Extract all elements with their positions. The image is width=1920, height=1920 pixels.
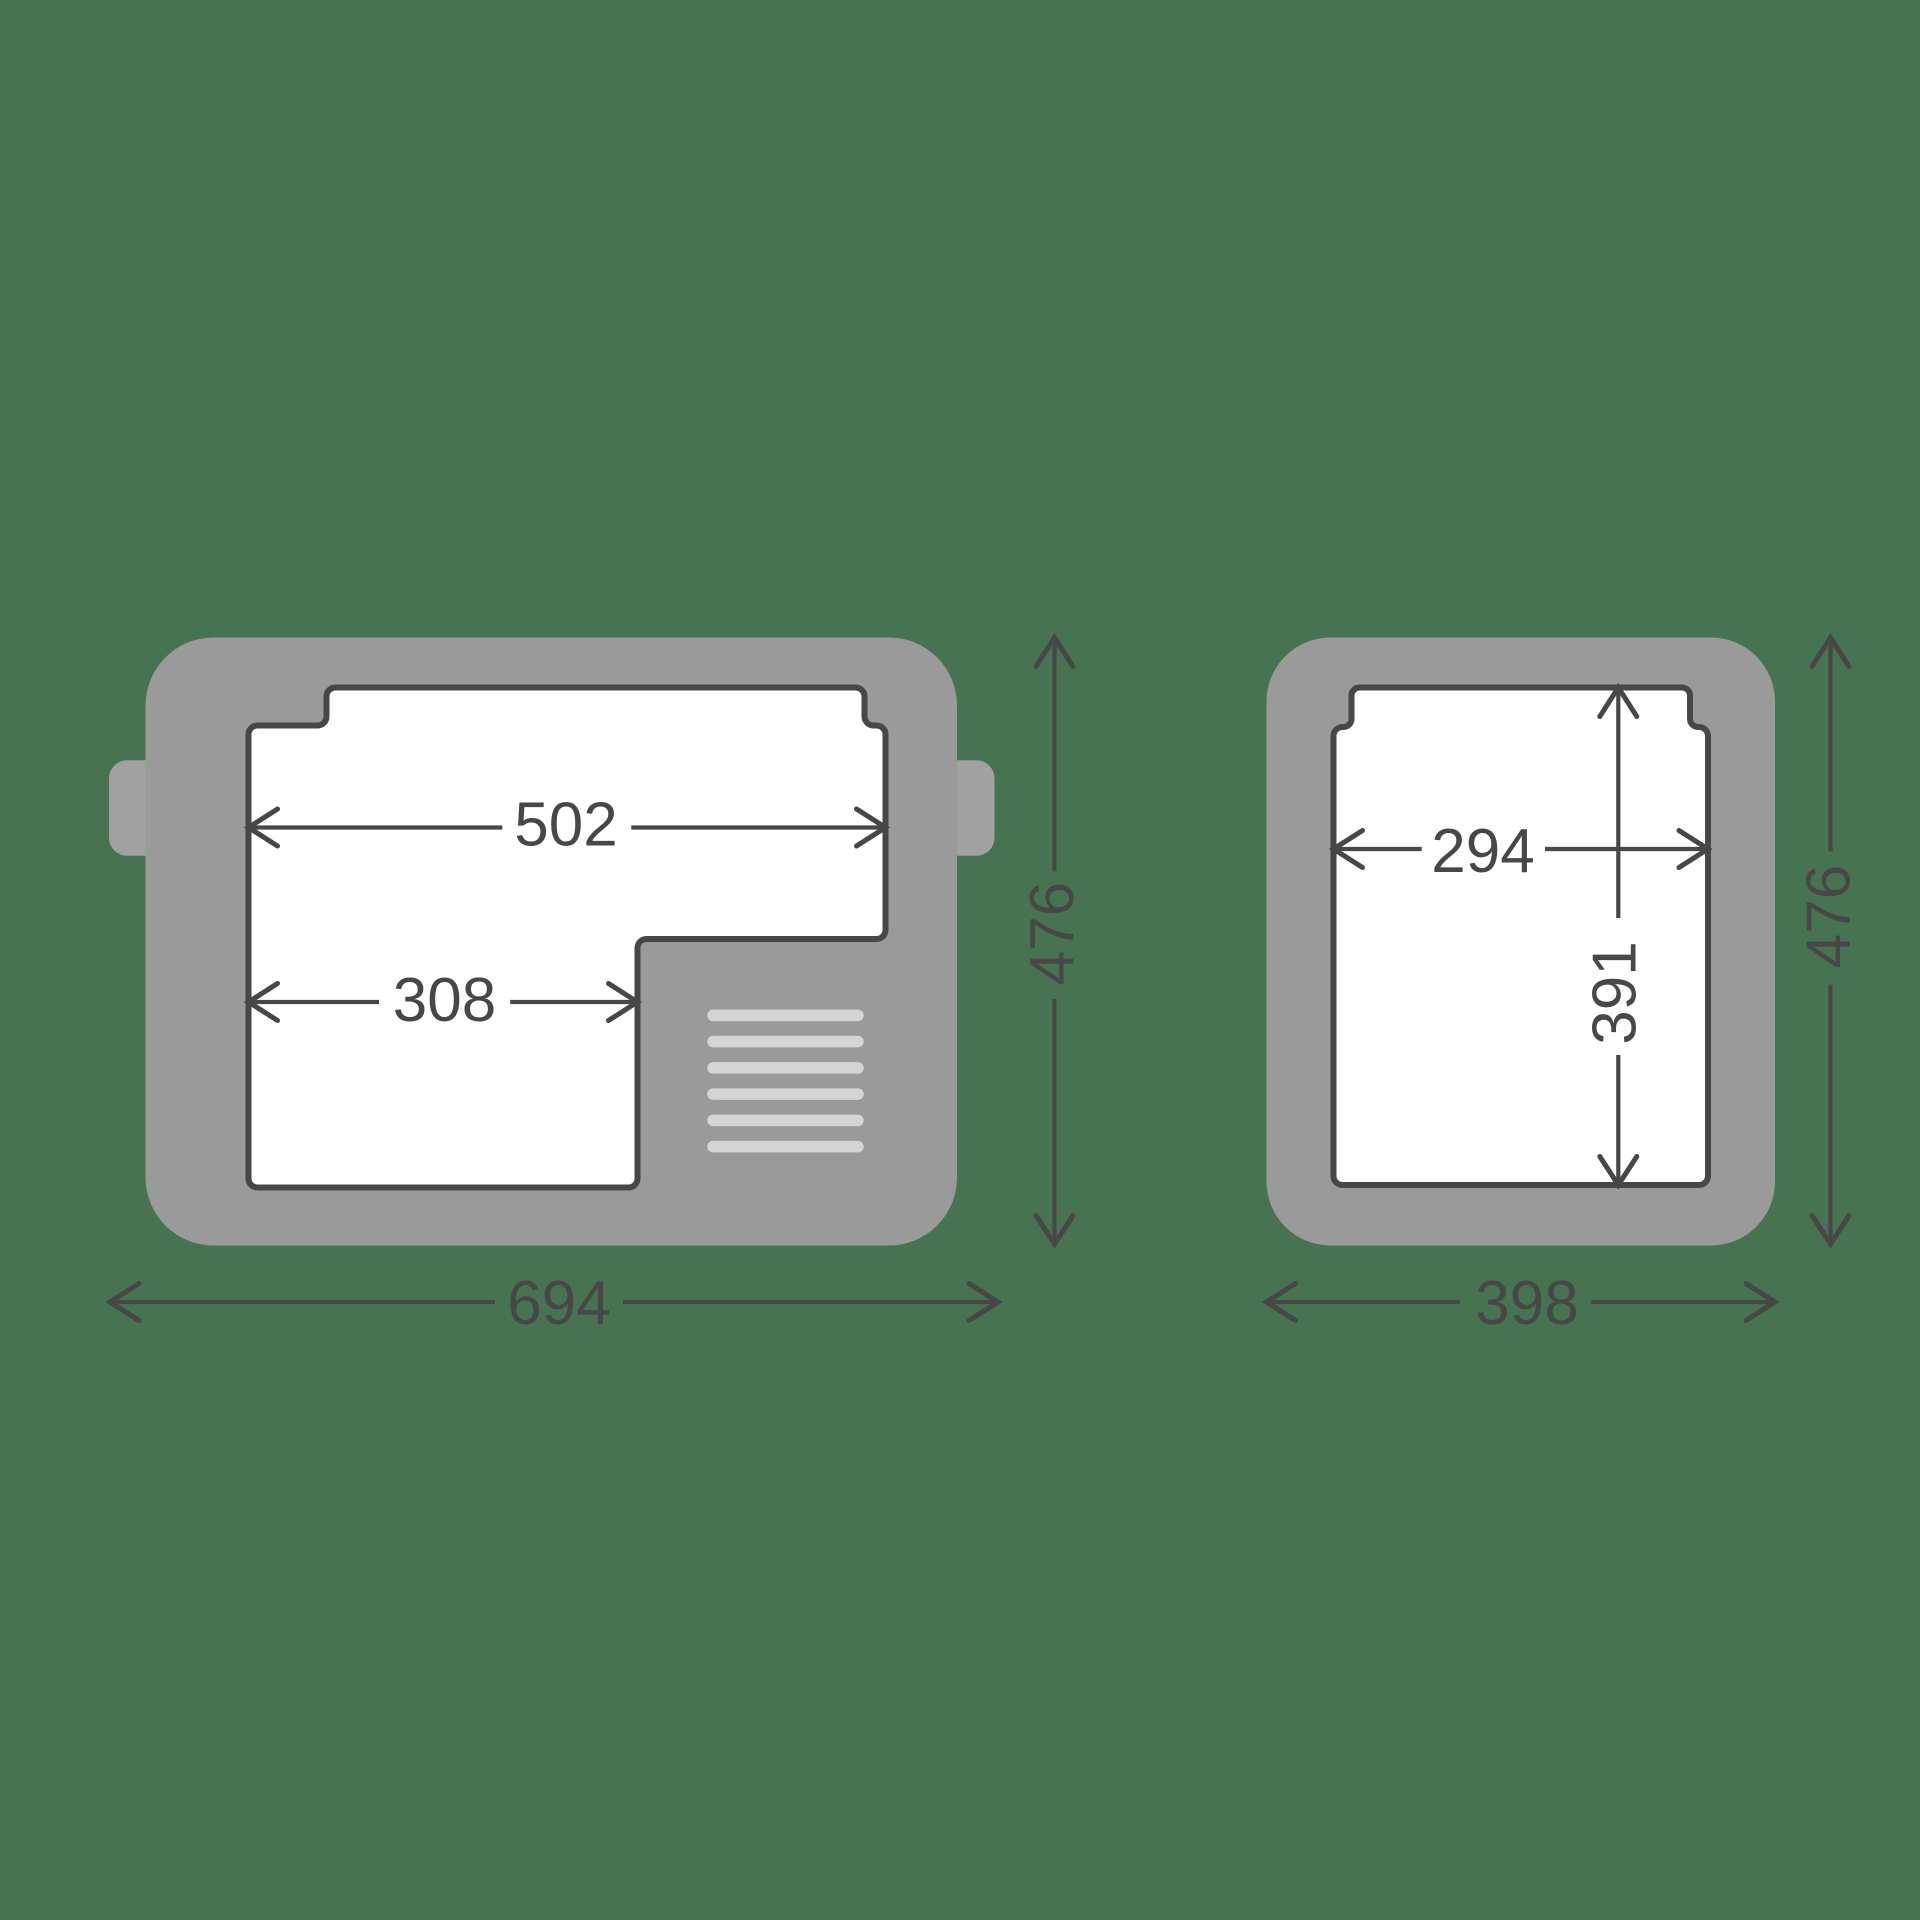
svg-text:294: 294	[1431, 817, 1534, 886]
svg-text:308: 308	[393, 966, 496, 1035]
svg-text:398: 398	[1475, 1269, 1578, 1338]
svg-text:502: 502	[514, 791, 617, 860]
svg-text:391: 391	[1580, 941, 1649, 1044]
svg-text:476: 476	[1018, 882, 1087, 985]
svg-text:694: 694	[507, 1269, 610, 1338]
svg-text:476: 476	[1795, 865, 1864, 968]
